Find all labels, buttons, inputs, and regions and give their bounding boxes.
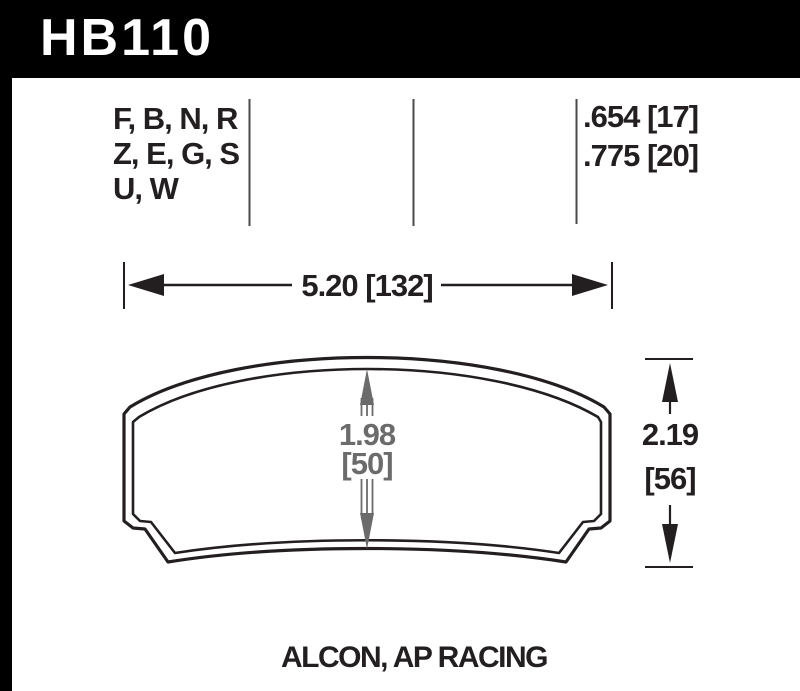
technical-drawing <box>0 0 800 691</box>
center-dim-up-arrowhead <box>360 369 374 405</box>
applications-text: ALCON, AP RACING <box>214 641 614 675</box>
center-dim-down-arrowhead <box>360 513 374 549</box>
width-dim-label: 5.20 [132] <box>267 268 467 304</box>
height-dim-up-arrowhead <box>662 363 678 402</box>
height-dim-inches-label: 2.19 <box>610 417 730 453</box>
height-dim-mm-label: [56] <box>610 461 730 497</box>
center-dim-mm-label: [50] <box>307 446 427 482</box>
width-dim-left-arrowhead <box>128 274 164 296</box>
width-dim-right-arrowhead <box>572 274 608 296</box>
column-dividers <box>250 99 577 226</box>
height-dim-down-arrowhead <box>662 524 678 563</box>
